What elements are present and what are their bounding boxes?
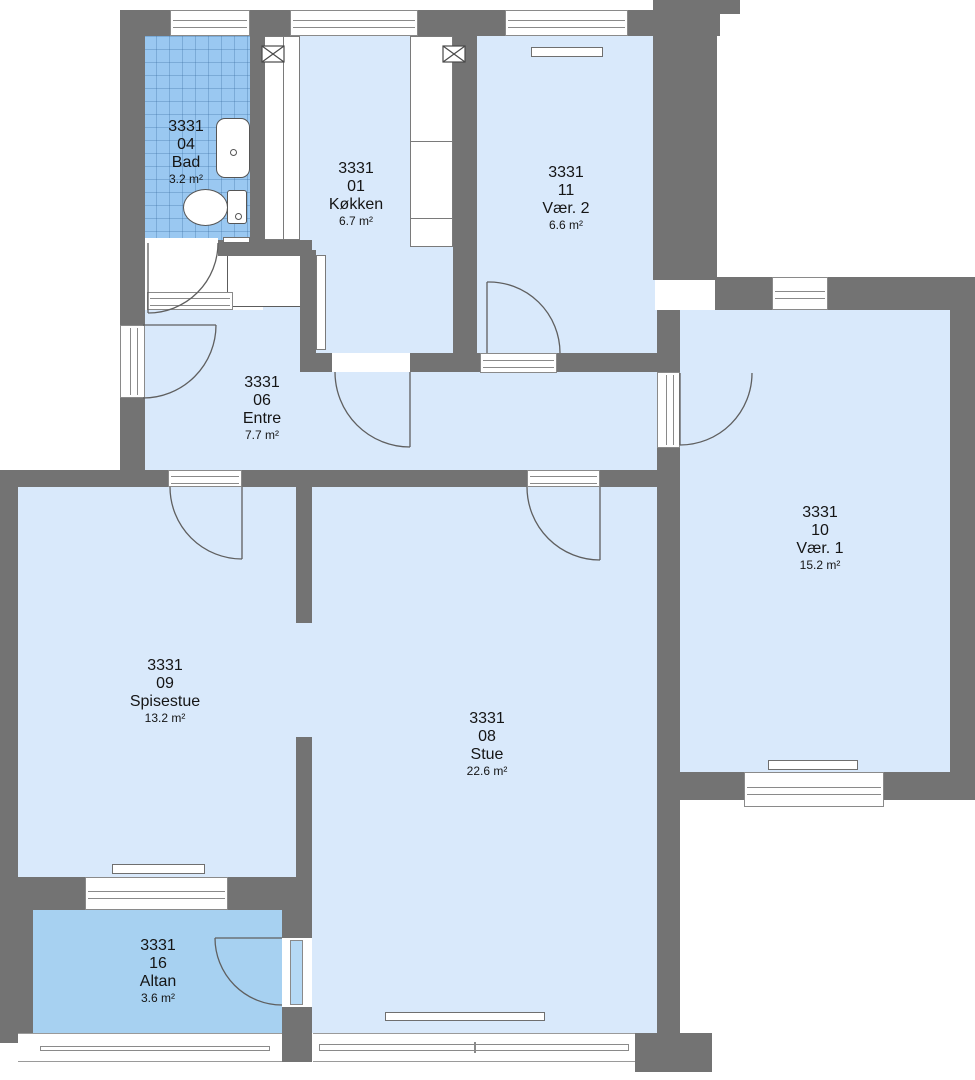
kitchen-tall-cabinet <box>316 255 326 350</box>
window-vaer1-top <box>772 277 828 310</box>
toilet-flush <box>235 213 242 220</box>
toilet-bowl <box>183 189 228 226</box>
floor-plan: 3331 04 Bad 3.2 m² 3331 01 Køkken 6.7 m²… <box>0 0 975 1080</box>
window-vaer2-top <box>505 10 628 36</box>
threshold-vaer2-door <box>480 353 557 373</box>
floor-vaer1 <box>677 310 950 772</box>
window-vaer1-bottom <box>744 772 884 807</box>
radiator-spisestue <box>112 864 205 874</box>
wall-left-upper <box>120 10 145 480</box>
threshold-vaer1-door <box>657 372 680 448</box>
wall-left-lower <box>0 470 18 1043</box>
opening-bad-door <box>145 238 218 252</box>
sink-drain <box>230 149 237 156</box>
bath-threshold <box>223 237 250 243</box>
kitchen-counter-right <box>410 36 453 247</box>
opening-kokken-door <box>332 353 410 372</box>
wall-vaer1-top <box>715 277 975 310</box>
window-mullion <box>474 1042 476 1053</box>
window-entre-left <box>120 325 145 398</box>
radiator-vaer2 <box>531 47 603 57</box>
wall-kokken-right <box>453 10 477 372</box>
window-kokken-top <box>290 10 418 36</box>
toilet-icon <box>227 190 247 224</box>
floor-stue <box>296 487 657 1033</box>
wall-topright-chunk <box>653 0 717 280</box>
sink-icon <box>216 118 250 178</box>
floor-spisestue <box>18 487 296 877</box>
counter-divider <box>283 37 284 241</box>
radiator-vaer1 <box>768 760 858 770</box>
floor-vaer2 <box>477 36 655 355</box>
wall-stue-br-chunk <box>635 1033 712 1072</box>
altan-door-glass <box>290 940 303 1005</box>
wall-vaer1-right <box>950 277 975 800</box>
window-spisestue-bottom <box>85 877 228 910</box>
floor-entre <box>145 310 657 470</box>
threshold-stue-door <box>527 470 600 487</box>
threshold-spisestue-door <box>168 470 242 487</box>
window-band-stue-bottom <box>313 1033 635 1062</box>
radiator-stue <box>385 1012 545 1021</box>
threshold-vestibule <box>147 292 233 310</box>
entry-closet <box>227 250 307 307</box>
counter-divider <box>411 218 454 219</box>
kitchen-counter-left <box>263 36 300 240</box>
wall-kokken-lowleft <box>300 250 316 353</box>
altan-door-frame <box>282 938 312 1007</box>
altan-railing <box>18 1033 282 1062</box>
window-bad-top <box>170 10 250 36</box>
railing-line <box>40 1046 270 1051</box>
floor-altan <box>33 910 282 1033</box>
counter-divider <box>411 141 454 142</box>
wall-bad-right <box>250 10 265 252</box>
wall-divider-upper <box>296 487 312 623</box>
